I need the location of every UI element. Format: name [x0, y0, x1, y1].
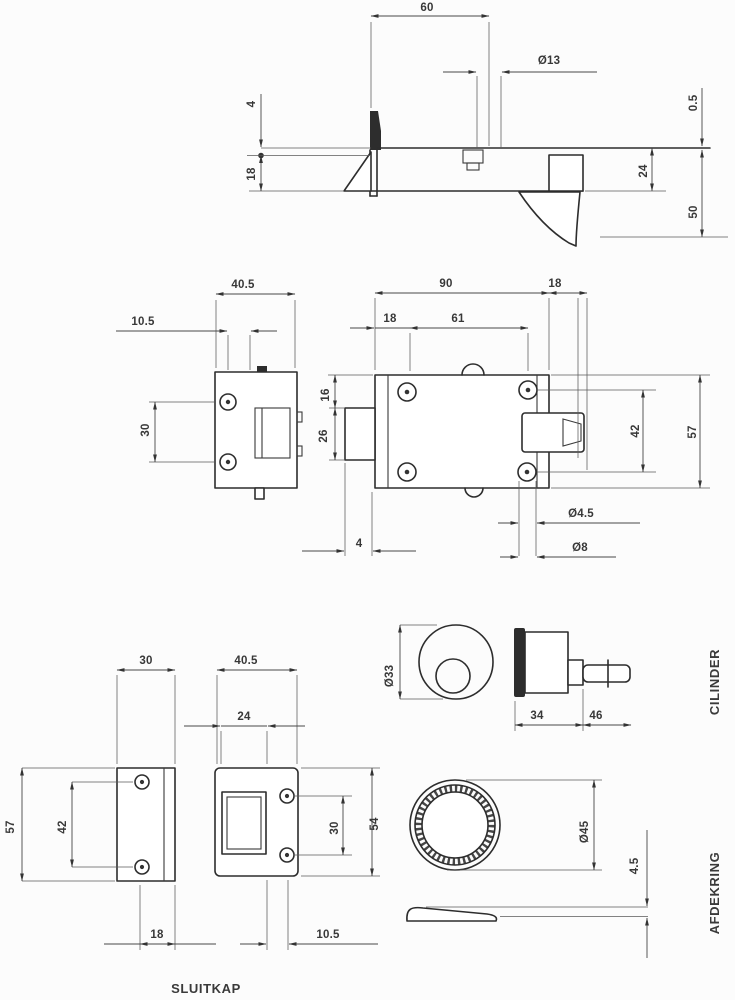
dim-cyl-height: 26: [318, 429, 330, 442]
dim-total-depth: 50: [688, 205, 700, 218]
keep-side-view: 30 57 42 18: [5, 655, 216, 950]
dim-bolt-throw: 18: [548, 278, 562, 290]
dim-screw-height: 42: [630, 424, 642, 437]
dim-keepfront-opening: 24: [237, 711, 251, 723]
caption-afdekring: AFDEKRING: [707, 852, 722, 935]
dim-keep-screws: 42: [57, 820, 69, 833]
caption-sluitkap: SLUITKAP: [171, 981, 241, 996]
dim-hole-large: Ø8: [572, 542, 588, 554]
dim-cylinder-tail: 46: [589, 710, 602, 722]
dim-keep-width: 30: [139, 655, 152, 667]
dim-keep-edge: 18: [150, 929, 164, 941]
dim-ring-thickness: 4.5: [629, 857, 641, 874]
keep-side-dimensions: 30 57 42 18: [5, 655, 216, 950]
dim-keep-height: 57: [5, 820, 17, 833]
keep-front-shapes: [215, 768, 298, 876]
dim-gap: 0.5: [688, 94, 700, 111]
caption-cilinder: CILINDER: [707, 649, 722, 715]
lock-end-shapes: [215, 366, 302, 499]
dim-cylinder-body: 34: [530, 710, 544, 722]
lock-front-shapes: [345, 364, 584, 497]
dim-end-offset: 10.5: [131, 316, 155, 328]
dim-cyl-hole: Ø13: [538, 55, 560, 67]
dim-end-width: 40.5: [231, 279, 255, 291]
dim-keepfront-screws: 30: [329, 821, 341, 834]
keep-side-shapes: [117, 768, 175, 881]
dim-keepfront-edge: 10.5: [316, 929, 340, 941]
dim-face-height: 18: [246, 167, 258, 181]
ring-profile: [407, 908, 497, 921]
thumb-slide: [519, 192, 580, 246]
dim-plate: 4: [356, 538, 363, 550]
technical-drawing-sheet: 60 Ø13 4 18 24 0.5 50: [0, 0, 735, 1000]
keep-front-view: 40.5 24 30 54 10.5 SLUITKAP: [171, 655, 381, 996]
dim-ring-dia: Ø45: [579, 820, 591, 843]
dim-top-gap: 16: [320, 388, 332, 401]
cylinder-views: Ø33 34 46 CILINDER: [384, 625, 722, 731]
rim-lock-drawing: 60 Ø13 4 18 24 0.5 50: [0, 0, 735, 1000]
dim-screw-width: 61: [451, 313, 465, 325]
dim-body-height: 57: [687, 425, 699, 438]
lock-side-shapes: [344, 111, 710, 246]
dim-keepfront-width: 40.5: [234, 655, 258, 667]
ring-views: Ø45 4.5 AFDEKRING: [407, 780, 722, 958]
lock-front-view: 90 18 18 61 16 26 4 42 57 Ø4.5 Ø8: [302, 278, 710, 557]
dim-lip: 4: [246, 100, 258, 107]
dim-hole-small: Ø4.5: [568, 508, 594, 520]
dim-cylinder-dia: Ø33: [384, 665, 396, 687]
lock-end-view: 40.5 10.5 30: [116, 279, 302, 499]
cylinder-shapes: [419, 625, 630, 699]
lock-side-view: 60 Ø13 4 18 24 0.5 50: [246, 2, 728, 246]
dim-backset: 60: [420, 2, 433, 14]
dim-end-screws: 30: [140, 423, 152, 436]
lock-side-dimensions: 60 Ø13 4 18 24 0.5 50: [246, 2, 728, 237]
dim-cyl-backset: 18: [383, 313, 397, 325]
dim-body-width: 90: [439, 278, 452, 290]
dim-case-depth: 24: [638, 164, 650, 178]
dim-keepfront-height: 54: [369, 817, 381, 831]
bolt: [522, 413, 584, 452]
ring-shapes: [407, 780, 500, 921]
